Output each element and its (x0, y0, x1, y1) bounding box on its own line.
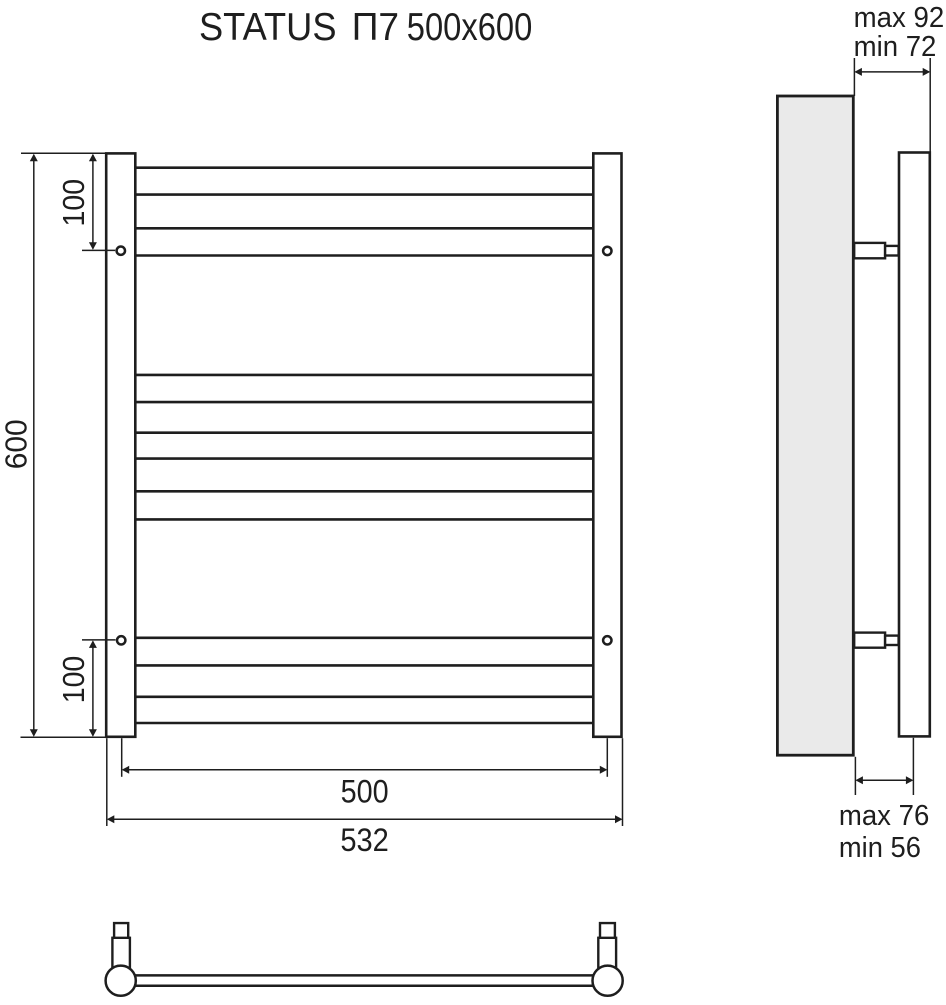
svg-text:П7: П7 (352, 6, 399, 49)
svg-text:STATUS: STATUS (199, 6, 337, 49)
svg-text:600: 600 (0, 419, 33, 469)
svg-text:100: 100 (56, 179, 91, 227)
svg-text:max 92: max 92 (854, 2, 945, 34)
svg-text:min 72: min 72 (854, 31, 937, 63)
svg-text:500: 500 (341, 773, 389, 809)
svg-text:min 56: min 56 (839, 832, 921, 864)
svg-text:max 76: max 76 (839, 800, 929, 832)
svg-text:100: 100 (56, 656, 91, 704)
svg-text:532: 532 (340, 822, 389, 858)
svg-text:500x600: 500x600 (407, 6, 533, 49)
